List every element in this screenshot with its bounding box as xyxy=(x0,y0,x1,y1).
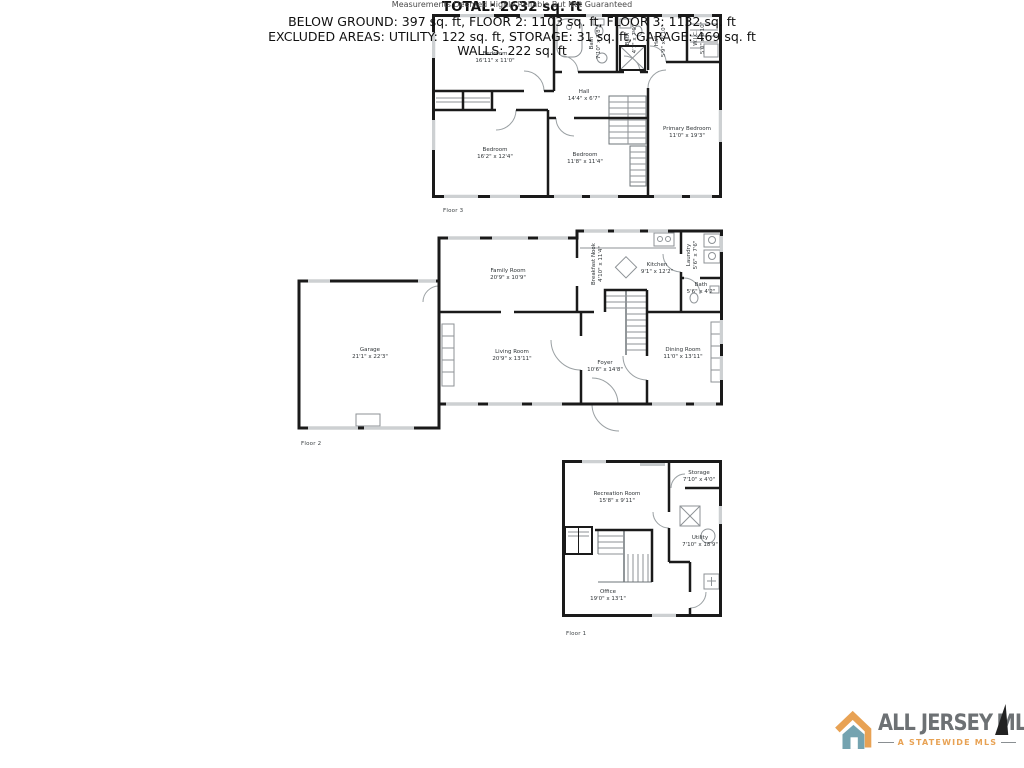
floor-plan-page: { "floors": [ { "label": "Floor 3", "roo… xyxy=(0,0,1024,768)
room-label-breakfast-nook: Breakfast Nook xyxy=(591,242,597,285)
floor-plan-2: Garage 21'1" x 22'3" Family Room 20'9" x… xyxy=(296,228,723,433)
floor-areas: BELOW GROUND: 397 sq. ft, FLOOR 2: 1103 … xyxy=(0,15,1024,30)
room-label-hall: Hall xyxy=(579,89,590,95)
floor-1-label: Floor 1 xyxy=(566,631,586,637)
wall-area: WALLS: 222 sq. ft xyxy=(0,44,1024,59)
room-label-bedroom-2: Bedroom xyxy=(483,147,508,153)
floor-1-drawing: Recreation Room 15'8" x 9'11" Storage 7'… xyxy=(562,460,722,617)
room-dims-foyer: 10'6" x 14'8" xyxy=(587,367,623,373)
room-label-primary-bedroom: Primary Bedroom xyxy=(663,126,711,132)
room-label-living-room: Living Room xyxy=(495,349,529,355)
room-label-laundry: Laundry xyxy=(686,243,692,266)
disclaimer-text: Measurements Deemed Highly Reliable But … xyxy=(0,0,1024,9)
room-label-garage: Garage xyxy=(360,347,381,353)
room-label-kitchen: Kitchen xyxy=(647,262,668,268)
all-jersey-mls-logo: ALL JERSEY MLS A STATEWIDE MLS xyxy=(833,701,1023,759)
room-dims-recreation-room: 15'8" x 9'11" xyxy=(599,498,635,504)
logo-title: ALL JERSEY MLS xyxy=(878,713,1005,735)
floor-3-label: Floor 3 xyxy=(443,208,463,214)
room-dims-family-room: 20'9" x 10'9" xyxy=(490,275,526,281)
room-dims-garage: 21'1" x 22'3" xyxy=(352,354,388,360)
floor-1-door-arcs xyxy=(653,474,706,608)
room-label-dining-room: Dining Room xyxy=(665,347,700,353)
subtitle-rule-left xyxy=(878,742,893,743)
room-dims-bedroom-2: 16'2" x 12'4" xyxy=(477,154,513,160)
room-label-office: Office xyxy=(600,589,617,595)
room-dims-kitchen: 9'1" x 12'2" xyxy=(641,269,673,275)
sail-icon xyxy=(993,704,1009,736)
room-dims-office: 19'0" x 13'1" xyxy=(590,596,626,602)
room-label-utility: Utility xyxy=(692,535,709,541)
room-dims-bedroom-1: 16'11" x 11'0" xyxy=(475,58,514,64)
room-label-recreation-room: Recreation Room xyxy=(594,491,641,497)
logo-title-part1: ALL JERSEY xyxy=(878,713,992,735)
logo-title-part2: MLS xyxy=(997,713,1024,735)
room-dims-bedroom-3: 11'8" x 11'4" xyxy=(567,159,603,165)
room-dims-laundry: 5'6" x 7'6" xyxy=(693,241,699,270)
floor-plan-1: Recreation Room 15'8" x 9'11" Storage 7'… xyxy=(562,460,722,617)
room-dims-primary-bedroom: 11'0" x 19'3" xyxy=(669,133,705,139)
room-label-foyer: Foyer xyxy=(597,360,613,366)
room-dims-bath-f2: 5'6" x 4'2" xyxy=(687,289,716,295)
room-label-bath-f2: Bath xyxy=(695,282,708,288)
floor-2-label: Floor 2 xyxy=(301,441,321,447)
room-dims-utility: 7'10" x 18'9" xyxy=(682,542,718,548)
room-dims-hall: 14'4" x 6'7" xyxy=(568,96,600,102)
logo-subtitle: A STATEWIDE MLS xyxy=(898,738,998,747)
subtitle-rule-right xyxy=(1001,742,1016,743)
room-label-family-room: Family Room xyxy=(490,268,525,274)
floor-2-walls xyxy=(299,231,722,428)
floor-2-windows xyxy=(308,231,722,428)
floor-2-drawing: Garage 21'1" x 22'3" Family Room 20'9" x… xyxy=(296,228,723,433)
room-dims-living-room: 20'9" x 13'11" xyxy=(492,356,531,362)
room-dims-storage: 7'10" x 4'0" xyxy=(683,477,715,483)
room-label-bedroom-3: Bedroom xyxy=(573,152,598,158)
room-dims-breakfast-nook: 4'10" x 11'4" xyxy=(598,246,604,282)
room-dims-dining-room: 11'0" x 13'11" xyxy=(663,354,702,360)
room-label-storage: Storage xyxy=(688,470,710,476)
house-icon xyxy=(833,703,872,757)
logo-subtitle-row: A STATEWIDE MLS xyxy=(878,738,1016,747)
excluded-areas: EXCLUDED AREAS: UTILITY: 122 sq. ft, STO… xyxy=(0,30,1024,45)
